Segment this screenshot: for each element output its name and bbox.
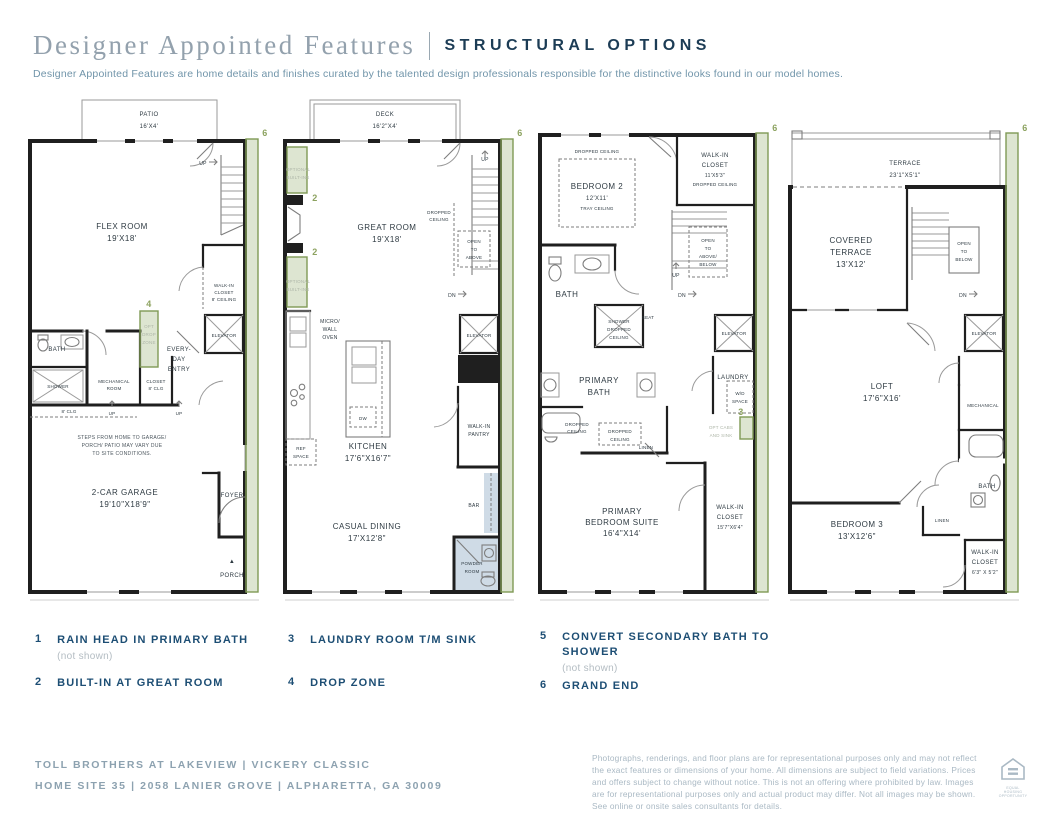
svg-text:6'3" X 5'2": 6'3" X 5'2" — [972, 570, 998, 576]
legend-item-6: 6 GRAND END — [540, 679, 640, 694]
svg-text:OPTIONAL: OPTIONAL — [286, 167, 311, 172]
svg-text:SEAT: SEAT — [642, 315, 654, 320]
svg-text:CLOSET: CLOSET — [972, 560, 998, 566]
svg-text:PANTRY: PANTRY — [468, 432, 490, 438]
svg-text:MICRO/: MICRO/ — [320, 319, 340, 325]
svg-text:W/D: W/D — [735, 391, 745, 396]
option-2-marker: 2 — [312, 247, 318, 257]
svg-text:ABOVE/: ABOVE/ — [699, 254, 718, 259]
legend-note: (not shown) — [57, 650, 248, 664]
header-description: Designer Appointed Features are home det… — [33, 68, 1023, 80]
footer-disclaimer: Photographs, renderings, and floor plans… — [592, 752, 984, 812]
svg-text:CEILING: CEILING — [610, 437, 630, 442]
svg-text:CLOSET: CLOSET — [717, 515, 743, 521]
svg-text:OPEN: OPEN — [467, 239, 481, 244]
svg-text:OPEN: OPEN — [701, 238, 715, 243]
svg-text:DROPPED: DROPPED — [608, 429, 632, 434]
svg-text:BATH: BATH — [48, 347, 65, 353]
flyer-page: { "header": { "title": "Designer Appoint… — [0, 0, 1055, 815]
svg-text:LAUNDRY: LAUNDRY — [717, 375, 748, 381]
legend-label: DROP ZONE — [310, 676, 386, 691]
legend-label: RAIN HEAD IN PRIMARY BATH — [57, 634, 248, 646]
svg-text:BATH: BATH — [556, 290, 579, 299]
svg-text:LINEN: LINEN — [639, 445, 653, 450]
legend-item-2: 2 BUILT-IN AT GREAT ROOM — [35, 676, 224, 691]
legend-label: LAUNDRY ROOM T/M SINK — [310, 633, 477, 648]
svg-text:GREAT ROOM: GREAT ROOM — [358, 223, 417, 232]
footer-community-info: TOLL BROTHERS AT LAKEVIEW | VICKERY CLAS… — [35, 755, 442, 797]
svg-text:ROOM: ROOM — [465, 569, 480, 574]
home-site-address: HOME SITE 35 | 2058 LANIER GROVE | ALPHA… — [35, 776, 442, 797]
svg-text:ABOVE: ABOVE — [466, 255, 483, 260]
svg-text:UP: UP — [199, 161, 207, 167]
legend-item-1: 1 RAIN HEAD IN PRIMARY BATH (not shown) — [35, 633, 248, 663]
svg-text:DROP: DROP — [142, 332, 156, 337]
svg-text:SHOWER: SHOWER — [608, 319, 630, 324]
svg-text:WALK-IN: WALK-IN — [971, 550, 999, 556]
svg-text:LINEN: LINEN — [935, 518, 949, 523]
svg-text:PRIMARY: PRIMARY — [579, 376, 619, 385]
legend-item-5: 5 CONVERT SECONDARY BATH TO SHOWER (not … — [540, 630, 777, 675]
option-4-marker: 4 — [146, 299, 152, 309]
svg-text:POWDER: POWDER — [461, 561, 483, 566]
svg-text:ROOM: ROOM — [107, 386, 122, 391]
svg-text:WALK-IN: WALK-IN — [468, 424, 491, 430]
legend-item-3: 3 LAUNDRY ROOM T/M SINK — [288, 633, 477, 648]
svg-text:DROPPED: DROPPED — [607, 327, 631, 332]
header: Designer Appointed Features STRUCTURAL O… — [33, 30, 1023, 80]
equal-housing-label: EQUAL HOUSING OPPORTUNITY — [998, 786, 1028, 799]
svg-text:▲: ▲ — [229, 559, 235, 565]
svg-text:WALL: WALL — [323, 327, 338, 333]
svg-text:SHOWER: SHOWER — [47, 384, 69, 389]
legend-note: (not shown) — [562, 662, 777, 676]
svg-text:STEPS FROM HOME TO GARAGE/: STEPS FROM HOME TO GARAGE/ — [77, 435, 166, 441]
svg-text:13'X12': 13'X12' — [836, 260, 866, 269]
svg-text:CLOSET: CLOSET — [702, 163, 728, 169]
plan4-option-markers — [1006, 133, 1018, 592]
legend-number: 1 — [35, 633, 41, 663]
svg-text:CLOSET: CLOSET — [146, 379, 165, 384]
svg-text:REF: REF — [296, 446, 306, 451]
legend-number: 2 — [35, 676, 41, 691]
svg-text:ZONE: ZONE — [142, 340, 155, 345]
svg-text:11'X5'3": 11'X5'3" — [705, 173, 725, 179]
svg-text:TO SITE CONDITIONS.: TO SITE CONDITIONS. — [92, 451, 151, 457]
svg-text:16'4"X14': 16'4"X14' — [603, 529, 641, 538]
svg-text:PRIMARY: PRIMARY — [602, 507, 642, 516]
svg-text:CEILING: CEILING — [429, 217, 449, 222]
svg-text:ELEVATOR: ELEVATOR — [212, 333, 237, 338]
option-6-marker: 6 — [262, 128, 268, 138]
svg-text:COVERED: COVERED — [829, 236, 872, 245]
svg-text:16'2"X4': 16'2"X4' — [373, 124, 398, 130]
svg-text:BEDROOM 3: BEDROOM 3 — [831, 520, 884, 529]
svg-text:ELEVATOR: ELEVATOR — [972, 331, 997, 336]
svg-text:UP: UP — [109, 411, 116, 416]
legend-item-4: 4 DROP ZONE — [288, 676, 386, 691]
svg-text:EVERY-: EVERY- — [167, 347, 191, 353]
legend-number: 6 — [540, 679, 546, 694]
svg-text:DROPPED: DROPPED — [565, 422, 589, 427]
svg-text:2-CAR GARAGE: 2-CAR GARAGE — [92, 488, 158, 497]
svg-text:19'X18': 19'X18' — [107, 234, 137, 243]
svg-text:8' CLG: 8' CLG — [148, 386, 163, 391]
legend-label: GRAND END — [562, 679, 639, 694]
svg-text:OPEN: OPEN — [957, 241, 971, 246]
svg-text:DW: DW — [359, 416, 367, 421]
svg-text:CASUAL DINING: CASUAL DINING — [333, 522, 401, 531]
floorplan-third-floor: 6 DROPPED CEILING BEDROOM 2 12'X11' TRAY… — [537, 95, 787, 610]
floorplan-second-floor: DECK 16'2"X4' 6 OPTIONAL BUILT-INS 2 2 O… — [282, 95, 532, 610]
svg-text:KITCHEN: KITCHEN — [349, 442, 388, 451]
svg-text:8' CEILING: 8' CEILING — [212, 297, 237, 302]
svg-text:BELOW: BELOW — [955, 257, 973, 262]
svg-text:DROPPED CEILING: DROPPED CEILING — [693, 182, 738, 187]
svg-text:TERRACE: TERRACE — [889, 161, 920, 167]
community-name: TOLL BROTHERS AT LAKEVIEW | VICKERY CLAS… — [35, 755, 442, 776]
legend-label: BUILT-IN AT GREAT ROOM — [57, 676, 224, 691]
svg-text:BAR: BAR — [468, 503, 479, 509]
svg-text:TO: TO — [705, 246, 712, 251]
svg-text:FOYER: FOYER — [221, 493, 244, 499]
page-subtitle-tag: STRUCTURAL OPTIONS — [444, 37, 710, 55]
svg-text:BUILT-INS: BUILT-INS — [287, 175, 310, 180]
svg-text:DECK: DECK — [376, 112, 394, 118]
svg-text:15'7"X6'4": 15'7"X6'4" — [717, 525, 743, 531]
svg-text:ELEVATOR: ELEVATOR — [722, 331, 747, 336]
svg-text:CEILING: CEILING — [567, 429, 587, 434]
svg-text:DN: DN — [678, 293, 686, 299]
svg-text:BEDROOM SUITE: BEDROOM SUITE — [585, 518, 659, 527]
legend-number: 4 — [288, 676, 294, 691]
svg-text:WALK-IN: WALK-IN — [701, 153, 729, 159]
title-divider — [429, 32, 430, 60]
equal-housing-house-icon — [1000, 757, 1026, 781]
svg-text:DN: DN — [959, 293, 967, 299]
svg-text:BATH: BATH — [588, 388, 611, 397]
svg-text:TRAY CEILING: TRAY CEILING — [580, 206, 614, 211]
svg-text:DAY: DAY — [172, 357, 185, 363]
svg-text:13'X12'6": 13'X12'6" — [838, 532, 876, 541]
plan4-walls — [790, 131, 1019, 600]
svg-text:PORCH/ PATIO MAY VARY DUE: PORCH/ PATIO MAY VARY DUE — [82, 443, 163, 449]
svg-text:PATIO: PATIO — [139, 112, 158, 118]
svg-text:16'X4': 16'X4' — [140, 124, 159, 130]
floorplan-fourth-floor: 6 TERRACE 23'1"X5'1" COVERED TERRACE 13'… — [787, 95, 1037, 610]
svg-text:8' CLG: 8' CLG — [61, 409, 76, 414]
svg-text:TO: TO — [471, 247, 478, 252]
svg-text:CEILING: CEILING — [609, 335, 629, 340]
svg-text:WALK-IN: WALK-IN — [214, 283, 234, 288]
svg-text:TO: TO — [961, 249, 968, 254]
svg-text:23'1"X5'1": 23'1"X5'1" — [889, 173, 920, 179]
svg-text:DROPPED CEILING: DROPPED CEILING — [575, 149, 620, 154]
svg-text:FLEX ROOM: FLEX ROOM — [96, 222, 148, 231]
legend-number: 5 — [540, 630, 546, 675]
option-6-marker: 6 — [1022, 123, 1028, 133]
svg-text:BELOW: BELOW — [699, 262, 717, 267]
option-6-marker: 6 — [772, 123, 778, 133]
svg-text:DN: DN — [448, 293, 456, 299]
svg-text:OPTIONAL: OPTIONAL — [286, 279, 311, 284]
svg-text:UP: UP — [481, 157, 489, 163]
svg-text:UP: UP — [672, 273, 680, 279]
equal-housing-logo: EQUAL HOUSING OPPORTUNITY — [998, 757, 1028, 799]
svg-text:SPACE: SPACE — [293, 454, 309, 459]
svg-text:17'6"X16'7": 17'6"X16'7" — [345, 454, 391, 463]
svg-text:ELEVATOR: ELEVATOR — [467, 333, 492, 338]
option-2-marker: 2 — [312, 193, 318, 203]
svg-text:DROPPED: DROPPED — [427, 210, 451, 215]
svg-text:SPACE: SPACE — [732, 399, 748, 404]
svg-text:OPT: OPT — [144, 324, 154, 329]
svg-text:MECHANICAL: MECHANICAL — [967, 403, 999, 408]
svg-text:WALK-IN: WALK-IN — [716, 505, 744, 511]
legend-number: 3 — [288, 633, 294, 648]
svg-text:BEDROOM 2: BEDROOM 2 — [571, 182, 624, 191]
svg-text:AND SINK: AND SINK — [710, 433, 733, 438]
svg-text:12'X11': 12'X11' — [586, 196, 608, 202]
svg-text:UP: UP — [176, 411, 183, 416]
svg-text:17'6"X16': 17'6"X16' — [863, 394, 901, 403]
svg-text:19'10"X18'9": 19'10"X18'9" — [99, 500, 150, 509]
svg-text:BATH: BATH — [978, 484, 995, 490]
option-3-marker: 3 — [738, 407, 744, 417]
svg-text:MECHANICAL: MECHANICAL — [98, 379, 130, 384]
svg-text:TERRACE: TERRACE — [830, 248, 872, 257]
option-6-marker: 6 — [517, 128, 523, 138]
legend-label: CONVERT SECONDARY BATH TO SHOWER — [562, 631, 769, 658]
floorplan-first-floor: PATIO 16'X4' 6 UP FLEX ROOM 19'X18' WALK… — [27, 95, 277, 610]
svg-text:BUILT-INS: BUILT-INS — [287, 287, 310, 292]
svg-text:CLOSET: CLOSET — [214, 290, 233, 295]
svg-text:LOFT: LOFT — [871, 382, 893, 391]
svg-text:PORCH: PORCH — [220, 573, 244, 579]
svg-text:OVEN: OVEN — [322, 335, 337, 341]
page-title: Designer Appointed Features — [33, 30, 415, 61]
svg-text:17'X12'8": 17'X12'8" — [348, 534, 386, 543]
svg-text:19'X18': 19'X18' — [372, 235, 402, 244]
svg-text:ENTRY: ENTRY — [168, 367, 190, 373]
svg-text:OPT CABS: OPT CABS — [709, 425, 733, 430]
